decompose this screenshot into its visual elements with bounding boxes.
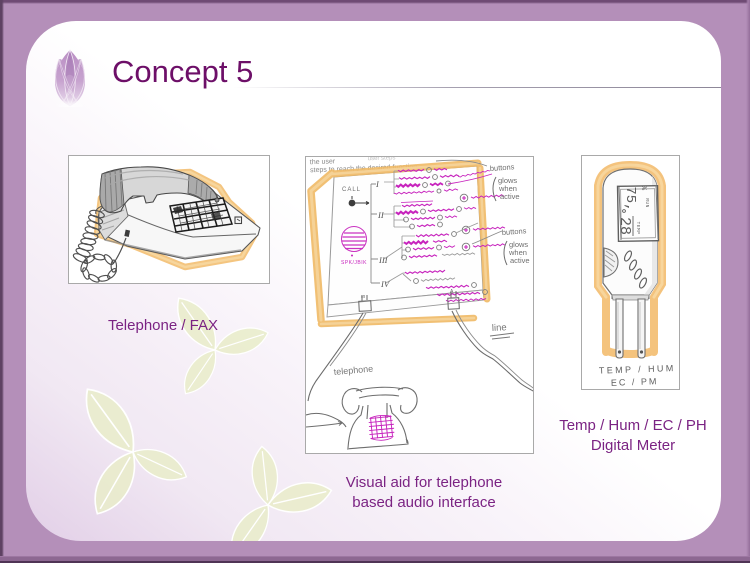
svg-text:II: II [377, 210, 385, 220]
svg-text:CALL: CALL [342, 187, 361, 193]
svg-text:TEMP: TEMP [635, 222, 641, 235]
svg-text:m: m [361, 294, 365, 300]
svg-text:TEMP / HUM: TEMP / HUM [599, 363, 676, 376]
svg-text:buttons: buttons [490, 162, 515, 173]
svg-text:user steps: user steps [368, 157, 396, 162]
svg-text:EC / PM: EC / PM [611, 376, 659, 388]
svg-text:RUN: RUN [644, 198, 650, 208]
svg-text:28: 28 [616, 217, 633, 235]
svg-text:line: line [492, 322, 507, 334]
svg-text:SPK/JBIK: SPK/JBIK [341, 260, 367, 266]
svg-text:active: active [510, 256, 530, 265]
svg-text:the user: the user [310, 158, 336, 166]
svg-text:active: active [500, 192, 520, 201]
svg-text:75,: 75, [622, 186, 638, 211]
svg-text:buttons: buttons [502, 226, 527, 237]
svg-text:telephone: telephone [333, 364, 373, 377]
